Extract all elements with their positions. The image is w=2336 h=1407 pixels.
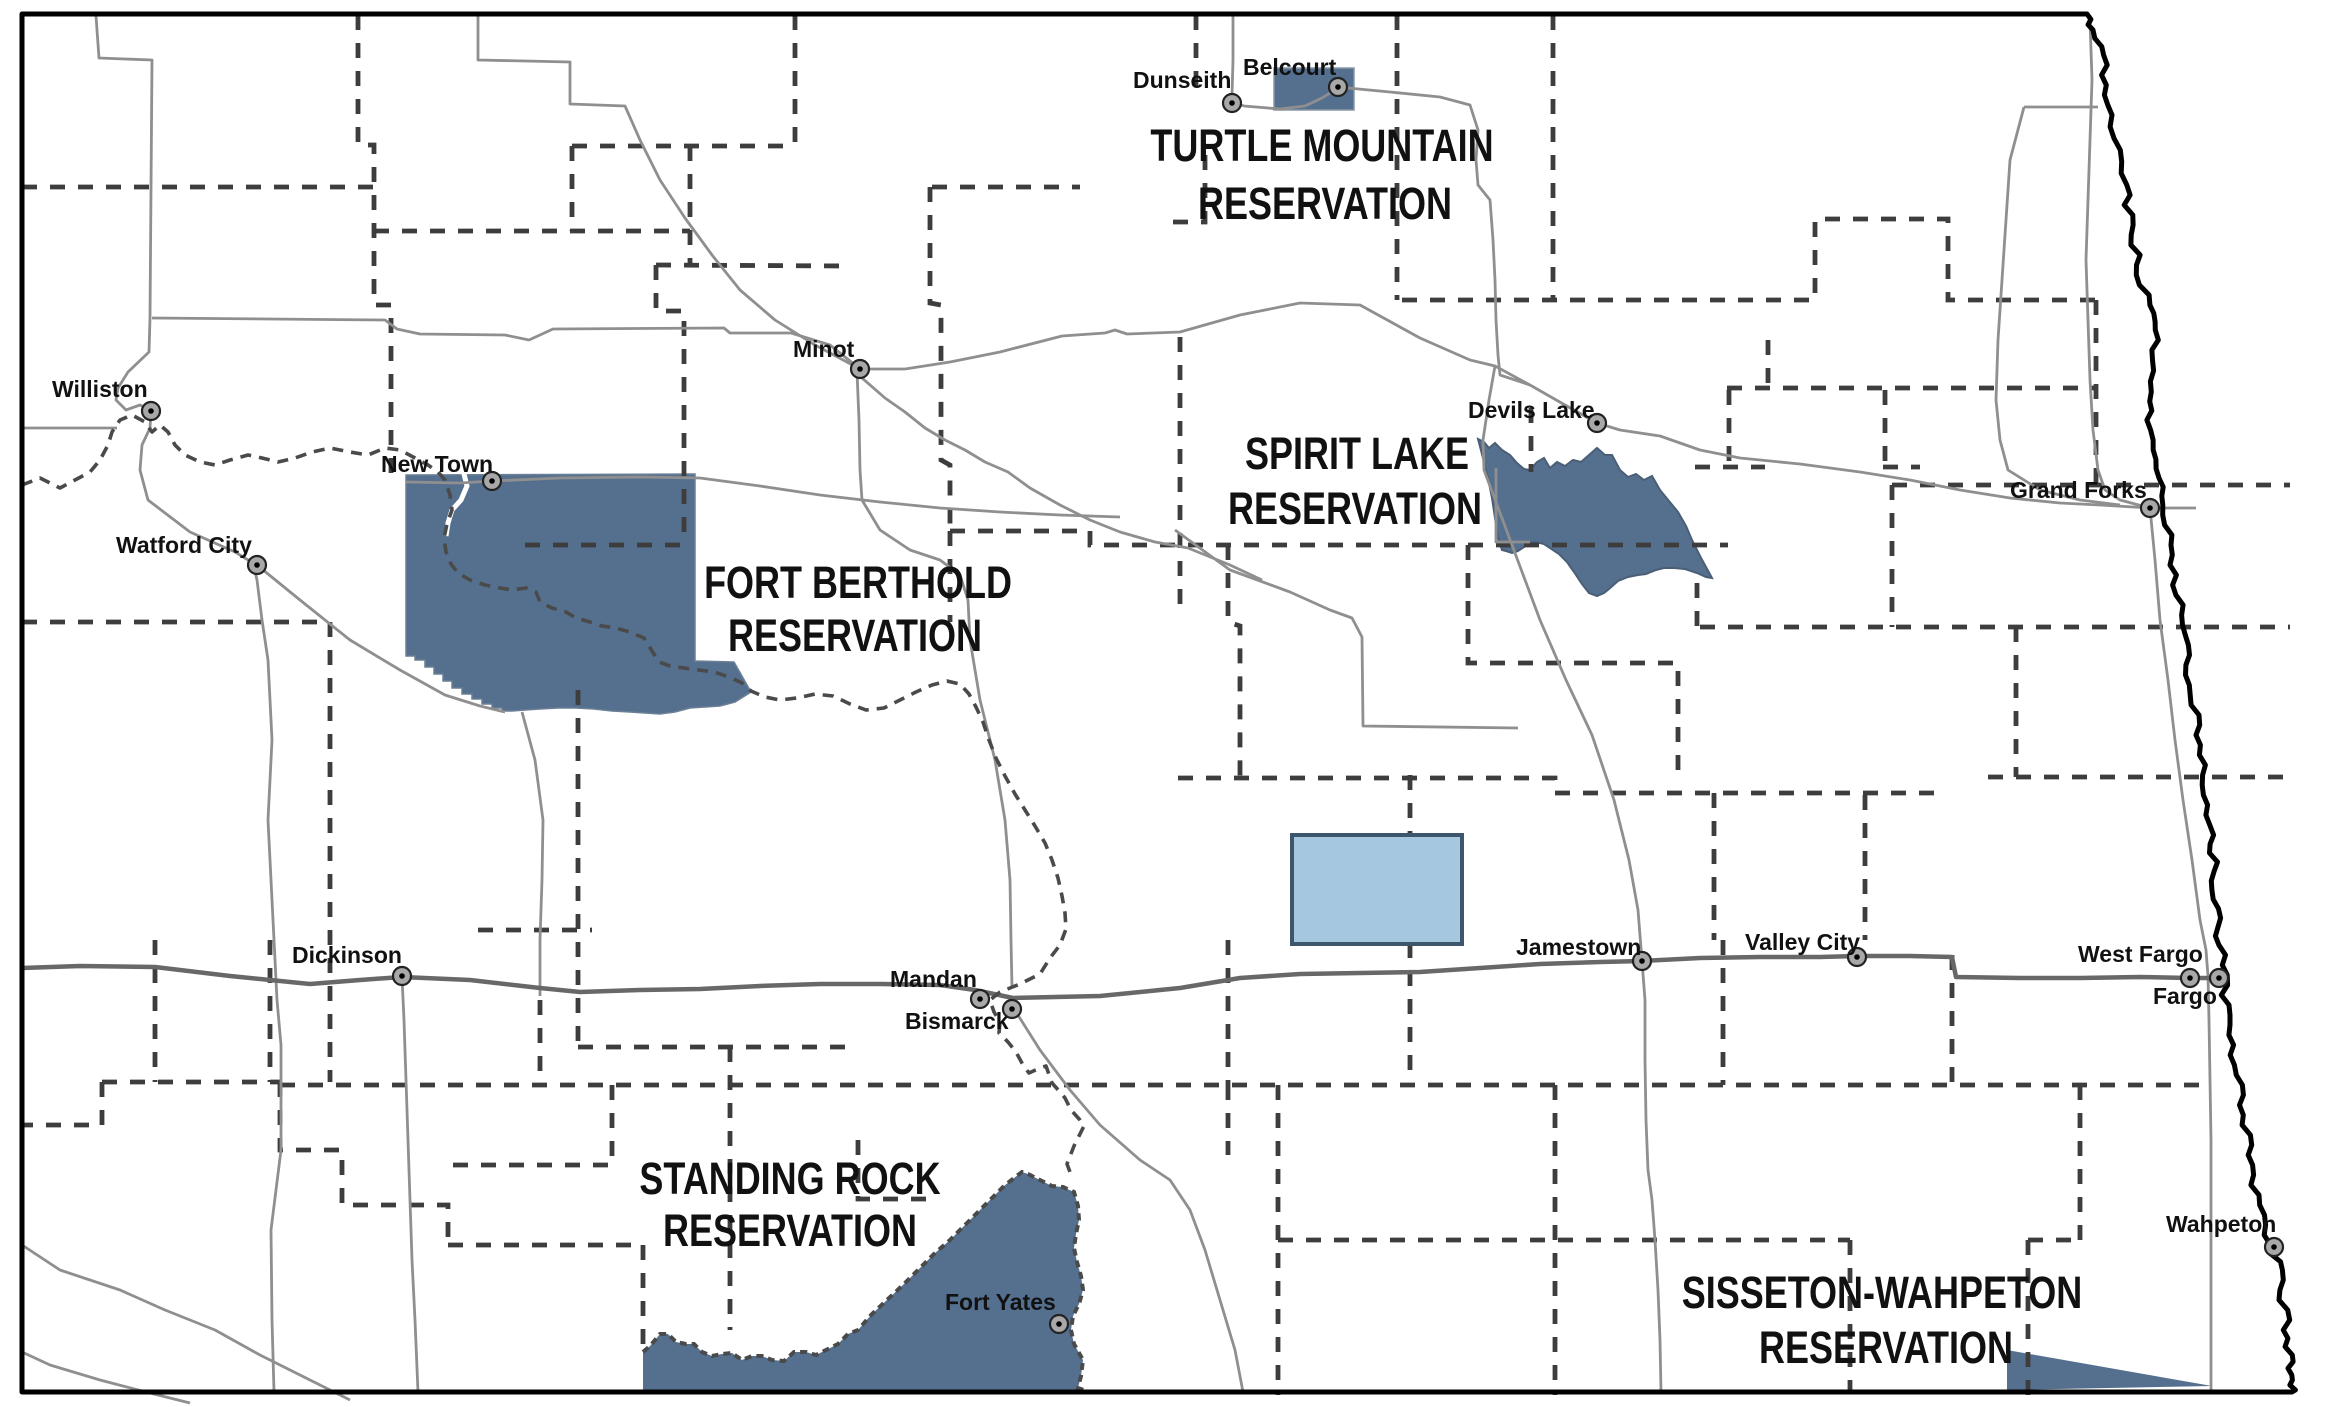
svg-text:RESERVATION: RESERVATION	[1198, 178, 1452, 229]
svg-text:Dickinson: Dickinson	[292, 942, 402, 968]
svg-text:Jamestown: Jamestown	[1516, 934, 1641, 960]
svg-text:FORT BERTHOLD: FORT BERTHOLD	[704, 557, 1012, 608]
svg-text:Wahpeton: Wahpeton	[2166, 1211, 2276, 1237]
svg-text:Watford City: Watford City	[116, 532, 252, 558]
svg-text:Devils Lake: Devils Lake	[1468, 397, 1595, 423]
svg-text:RESERVATION: RESERVATION	[1228, 483, 1482, 534]
svg-text:Williston: Williston	[52, 376, 148, 402]
svg-text:Belcourt: Belcourt	[1243, 54, 1337, 80]
svg-text:Bismarck: Bismarck	[905, 1008, 1009, 1034]
svg-text:TURTLE MOUNTAIN: TURTLE MOUNTAIN	[1150, 120, 1493, 171]
svg-text:SPIRIT LAKE: SPIRIT LAKE	[1245, 428, 1469, 479]
svg-text:Grand Forks: Grand Forks	[2010, 477, 2147, 503]
svg-text:West Fargo: West Fargo	[2078, 941, 2203, 967]
svg-text:RESERVATION: RESERVATION	[663, 1205, 917, 1256]
svg-text:Valley City: Valley City	[1745, 929, 1860, 955]
svg-text:Dunseith: Dunseith	[1133, 67, 1231, 93]
svg-text:SISSETON-WAHPETON: SISSETON-WAHPETON	[1682, 1267, 2083, 1318]
svg-text:New Town: New Town	[381, 451, 493, 477]
svg-text:RESERVATION: RESERVATION	[728, 610, 982, 661]
svg-text:Fargo: Fargo	[2153, 983, 2217, 1009]
svg-text:RESERVATION: RESERVATION	[1759, 1322, 2013, 1373]
svg-text:Fort Yates: Fort Yates	[945, 1289, 1056, 1315]
svg-text:Mandan: Mandan	[890, 966, 977, 992]
svg-text:STANDING ROCK: STANDING ROCK	[639, 1153, 941, 1204]
svg-text:Minot: Minot	[793, 336, 855, 362]
